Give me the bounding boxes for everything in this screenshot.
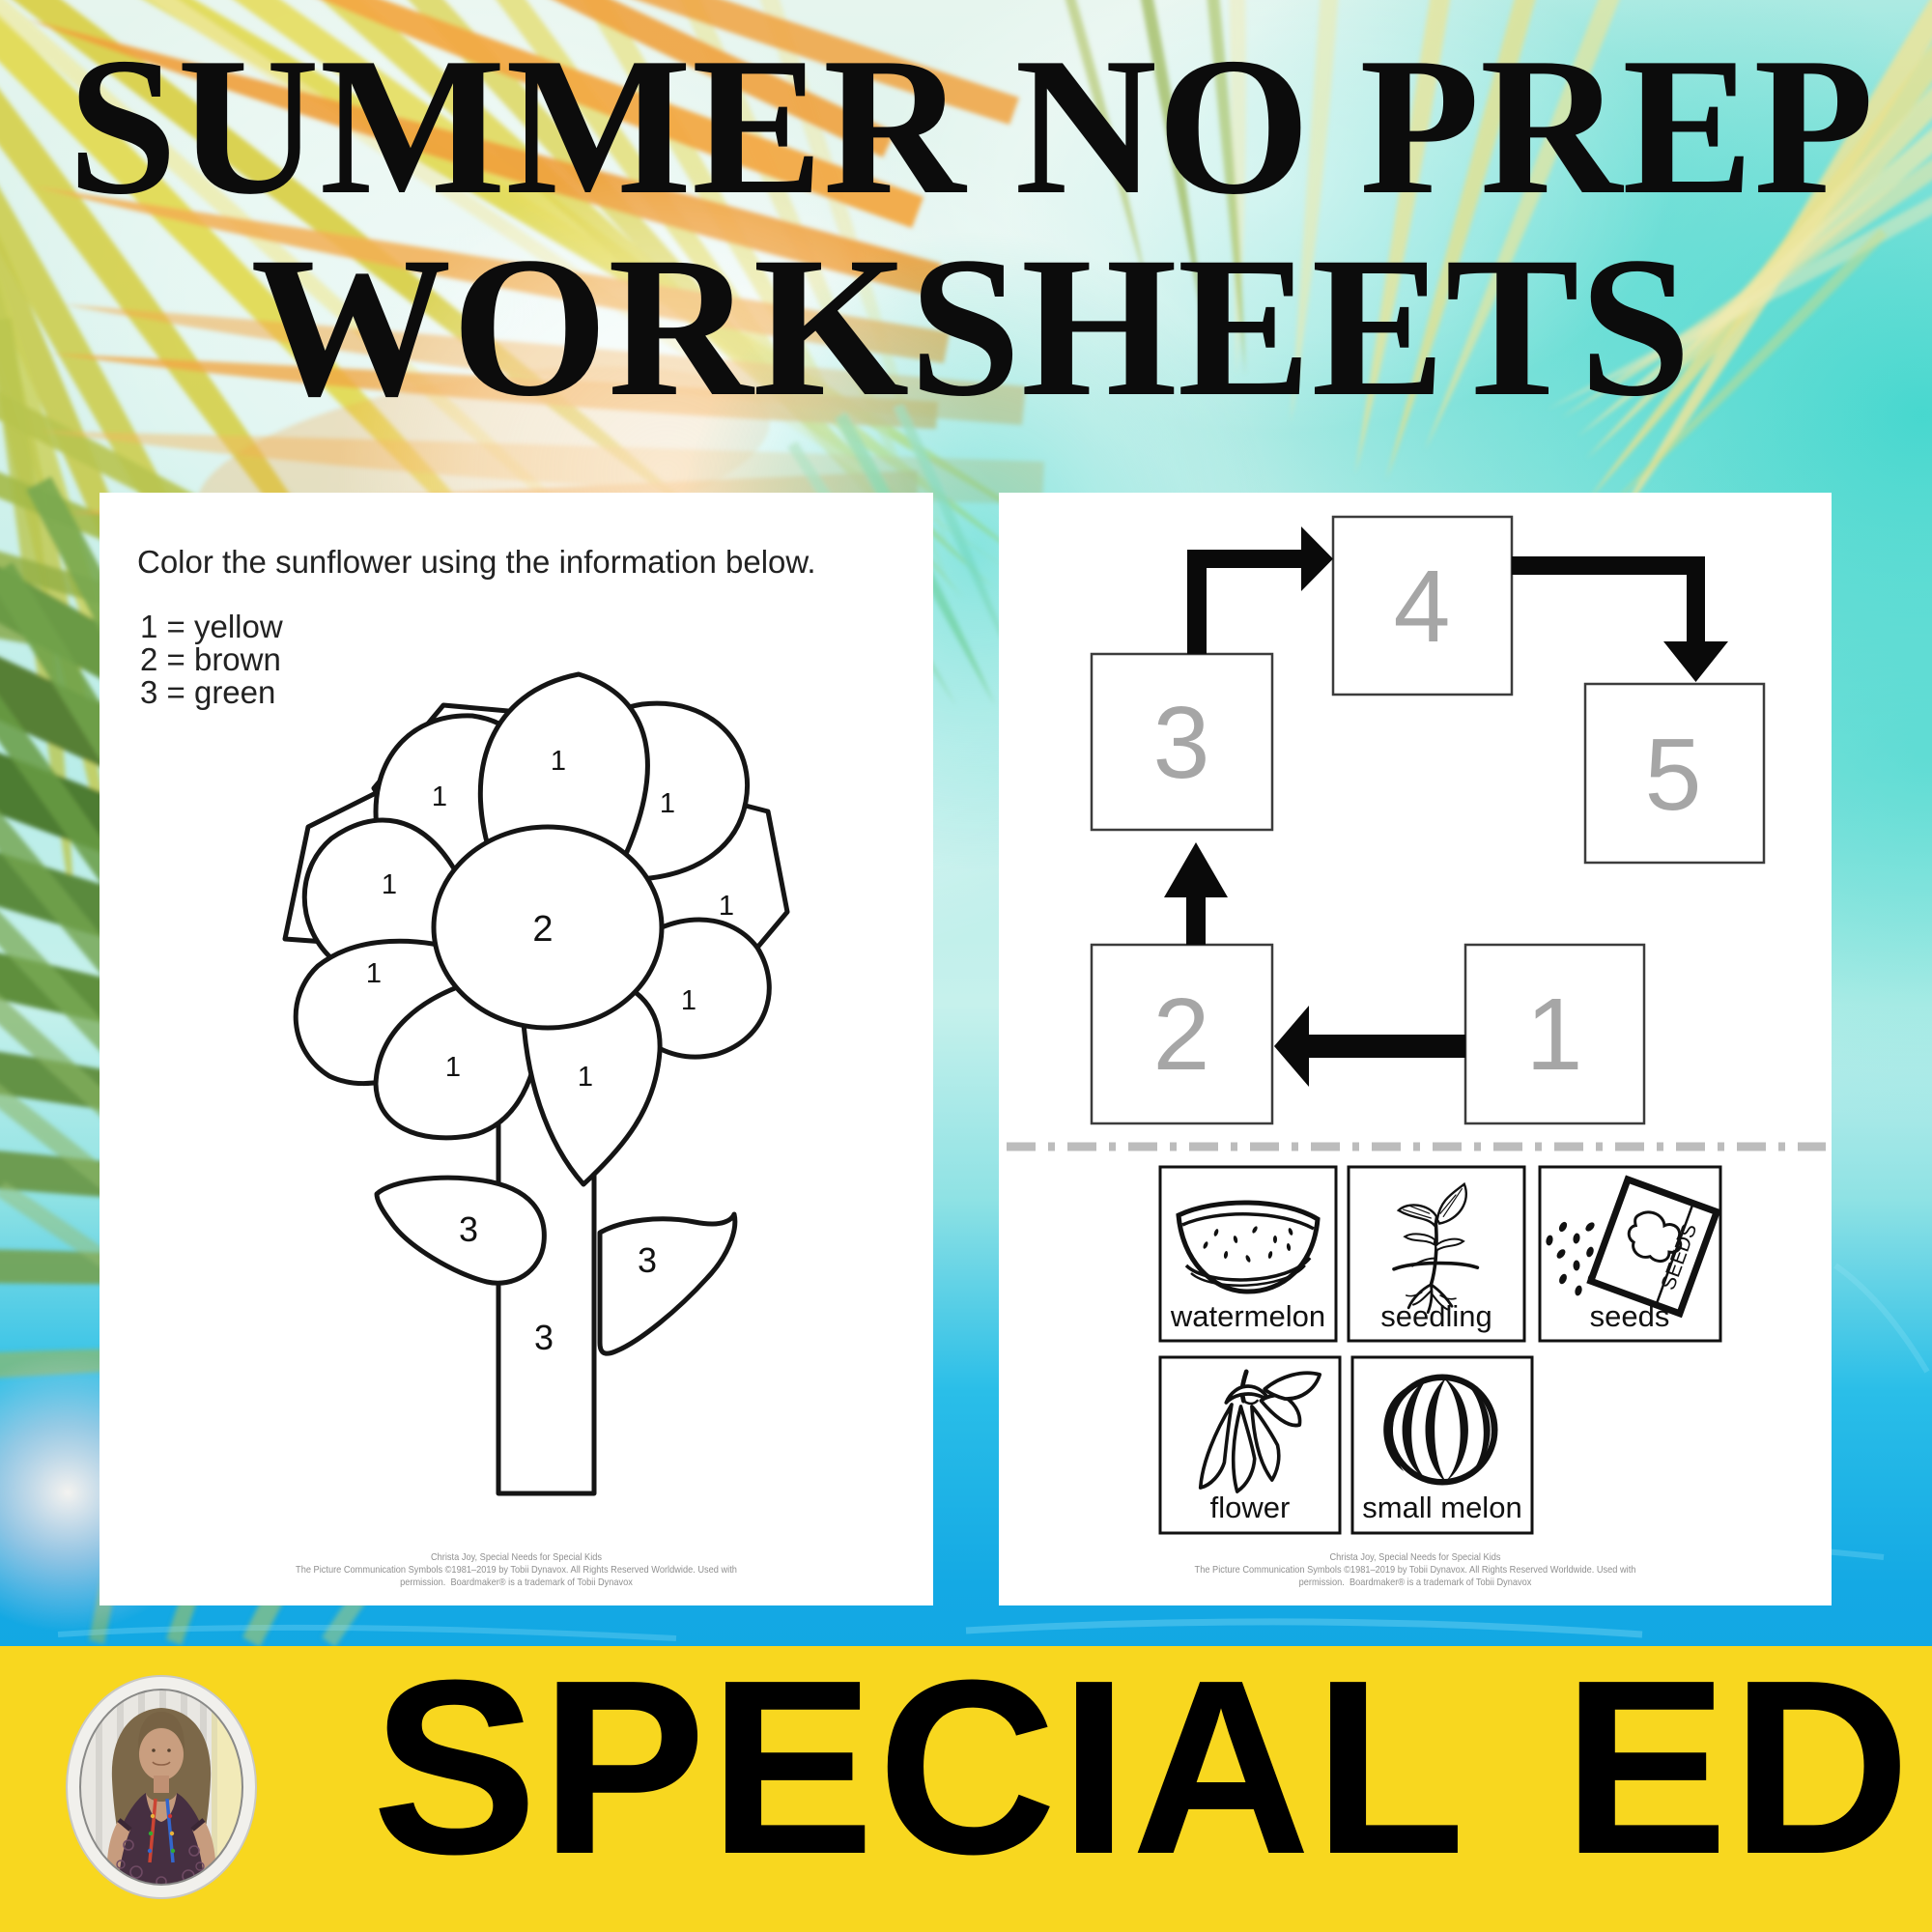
svg-text:5: 5 (1645, 718, 1702, 832)
svg-text:1: 1 (366, 958, 382, 989)
svg-text:small melon: small melon (1362, 1491, 1521, 1524)
svg-text:1: 1 (432, 781, 447, 812)
svg-text:watermelon: watermelon (1170, 1299, 1325, 1333)
svg-text:2: 2 (1153, 978, 1210, 1092)
svg-text:1: 1 (382, 869, 397, 900)
svg-text:1: 1 (578, 1062, 593, 1093)
svg-text:flower: flower (1210, 1491, 1291, 1524)
svg-text:2: 2 (532, 909, 553, 950)
svg-text:1: 1 (445, 1052, 461, 1083)
svg-text:3: 3 (1153, 686, 1210, 800)
svg-text:4: 4 (1394, 550, 1451, 664)
svg-text:1: 1 (660, 788, 675, 819)
svg-text:seedling: seedling (1380, 1299, 1492, 1333)
svg-text:3: 3 (638, 1240, 657, 1280)
svg-text:3: 3 (534, 1318, 554, 1357)
svg-text:3: 3 (459, 1209, 478, 1249)
svg-text:1: 1 (551, 746, 566, 777)
svg-text:1: 1 (681, 985, 696, 1016)
svg-text:1: 1 (1526, 978, 1583, 1092)
svg-text:1: 1 (719, 891, 734, 922)
